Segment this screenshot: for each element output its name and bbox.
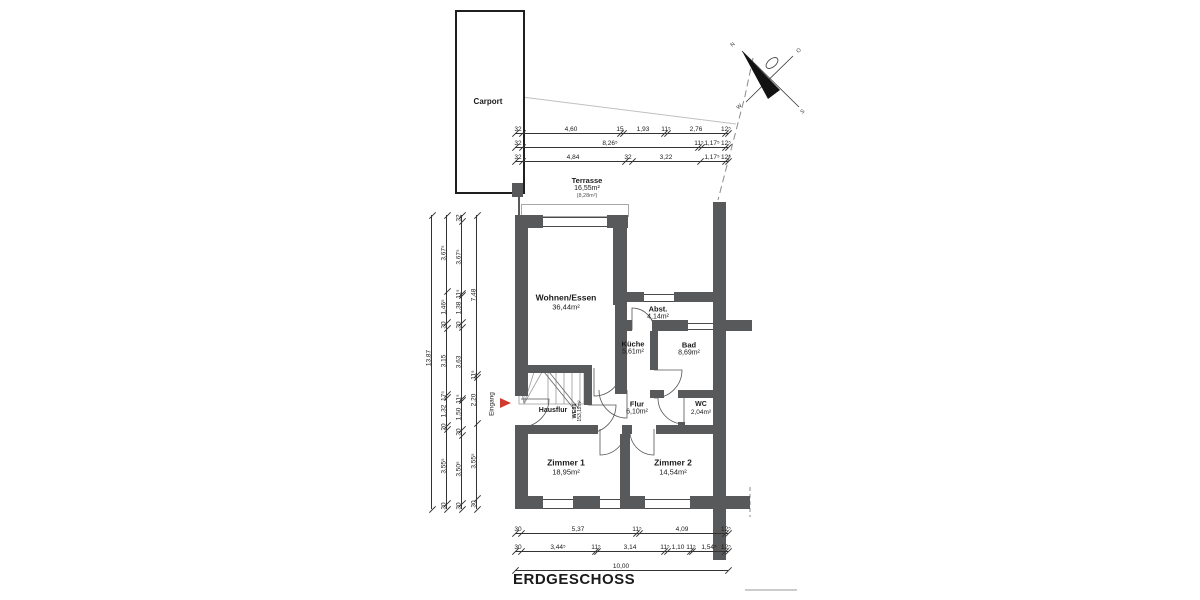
wall (627, 292, 644, 302)
dimension-label: 11⁵ (471, 370, 478, 379)
dimension-label: 4,60 (565, 126, 578, 133)
window (645, 499, 690, 509)
window (543, 217, 607, 227)
dimension-label: 3,67⁵ (441, 245, 448, 260)
dimension-label: 1,10 (672, 544, 685, 551)
dimension-label: 32 (624, 154, 631, 161)
dimension-label: 13,87 (426, 350, 433, 366)
dimension-label: 10,00 (613, 563, 629, 570)
dimension-label: 2,20 (471, 394, 478, 407)
dimension-label: 1,38 (456, 302, 463, 315)
dimension-label: 11⁵ (661, 126, 670, 133)
dimension-label: 32 (514, 126, 521, 133)
dimension-label: 32 (456, 214, 463, 221)
dimension-chain-line: 323,67⁵11⁵1,38303,6311⁵1,50303,50⁵30 (461, 215, 462, 509)
dimension-label: 1,46⁵ (441, 299, 448, 314)
dimension-chain-line: 324,84323,221,17⁵12⁵ (515, 161, 728, 162)
room-label-abstellraum: Abst. 4,14m² (647, 304, 669, 321)
room-label-wc: WC 2,04m² (691, 401, 711, 417)
dimension-label: 7,48 (471, 289, 478, 302)
dimension-label: 11⁵ (694, 140, 703, 147)
dimension-chain-line: 305,3711⁵4,0912⁵ (515, 533, 728, 534)
wall (627, 320, 632, 331)
wall (656, 425, 713, 434)
dimension-label: 15 (616, 126, 623, 133)
wall (573, 496, 600, 509)
wall (515, 215, 543, 228)
dimension-label: 32 (514, 154, 521, 161)
room-label-zimmer2: Zimmer 2 14,54m² (654, 457, 692, 476)
dimension-label: 11⁵ (660, 544, 669, 551)
window (644, 294, 674, 302)
dimension-label: 30 (456, 321, 463, 328)
dimension-label: 30 (471, 500, 478, 507)
dimension-label: 12⁵ (721, 126, 731, 133)
wall (613, 215, 627, 305)
dimension-label: 3,14 (624, 544, 637, 551)
window (543, 499, 573, 509)
dimension-chain-line: 303,44⁵11⁵3,1411⁵1,1011⁵1,54⁵12⁵ (515, 551, 728, 552)
wall (690, 496, 750, 509)
wall (515, 365, 592, 373)
dimension-label: 11⁵ (456, 394, 463, 403)
room-label-terrasse: Terrasse 16,55m² (8,28m²) (572, 176, 603, 200)
dimension-label: 30 (456, 428, 463, 435)
dimension-label: 20 (441, 423, 448, 430)
window (600, 499, 620, 509)
dimension-label: 3,50⁵ (456, 461, 463, 476)
room-label-flur: Flur 6,10m² (626, 399, 648, 416)
plan-linework (0, 0, 1200, 600)
dimension-label: 3,55⁵ (471, 453, 478, 468)
dimension-chain-line: 324,60151,9311⁵2,7612⁵ (515, 133, 728, 134)
dimension-label: 12⁵ (721, 544, 731, 551)
dimension-label: 12⁵ (721, 526, 731, 533)
dimension-label: 3,15 (441, 355, 448, 368)
dimension-label: 3,67⁵ (456, 249, 463, 264)
dimension-label: 1,93 (637, 126, 650, 133)
room-label-bad: Bad 8,69m² (678, 340, 700, 357)
wall (518, 196, 520, 215)
wall (515, 496, 543, 509)
room-label-hausflur: Hausflur (539, 407, 567, 415)
dimension-label: 1,50 (456, 408, 463, 421)
dimension-label: 30 (514, 526, 521, 533)
dimension-label: 4,84 (567, 154, 580, 161)
dimension-label: 11⁵ (686, 544, 695, 551)
wall (620, 434, 630, 496)
dimension-chain-line: 3,67⁵1,46⁵303,1517⁵1,32203,55⁵30 (446, 215, 447, 509)
dimension-label: 3,44⁵ (550, 544, 565, 551)
dimension-label: 1,17⁵ (704, 140, 719, 147)
dimension-chain-line: 7,4811⁵2,203,55⁵30 (476, 215, 477, 509)
dimension-label: 12⁵ (721, 154, 731, 161)
dimension-label: 3,22 (660, 154, 673, 161)
wall (584, 365, 592, 405)
wall (515, 425, 598, 434)
dimension-label: 2,76 (690, 126, 703, 133)
dimension-label: 1,54⁵ (701, 544, 716, 551)
window (688, 323, 713, 330)
dimension-label: 1,17⁵ (704, 154, 719, 161)
wall (678, 390, 713, 398)
north-arrow-icon (742, 51, 799, 107)
wall (650, 390, 664, 398)
dimension-chain-line: 13,87 (431, 215, 432, 509)
wall (622, 425, 632, 434)
room-label-wohnen-essen: Wohnen/Essen 36,44m² (536, 292, 597, 311)
room-label-kueche: Küche 5,61m² (622, 339, 645, 356)
dimension-label: 3,55⁵ (441, 458, 448, 473)
wall (650, 331, 658, 370)
dimension-label: 12⁵ (721, 140, 731, 147)
dimension-label: 3,63 (456, 356, 463, 369)
wall (615, 386, 627, 394)
dimension-label: 30 (441, 321, 448, 328)
page-title: ERDGESCHOSS (513, 571, 635, 588)
floor-plan-canvas: N O S W Carport Terrasse 16,55m² (8,28m²… (0, 0, 1200, 600)
dimension-label: 5,37 (572, 526, 585, 533)
dimension-label: 30 (441, 502, 448, 509)
room-label-zimmer1: Zimmer 1 18,95m² (547, 457, 585, 476)
dimension-label: 17⁵ (441, 391, 448, 401)
dimension-label: 11⁵ (591, 544, 600, 551)
entrance-arrow-icon (500, 398, 511, 408)
unit-label: WE01 153,12m² (572, 400, 584, 421)
dimension-label: 1,32 (441, 405, 448, 418)
dimension-label: 8,26⁵ (602, 140, 617, 147)
dimension-label: 30 (456, 502, 463, 509)
wall (726, 320, 752, 331)
carport-label: Carport (474, 97, 503, 107)
wall (512, 183, 523, 197)
dimension-label: 30 (514, 544, 521, 551)
wall (620, 496, 645, 509)
dimension-label: 11⁵ (632, 526, 641, 533)
dimension-label: 32 (514, 140, 521, 147)
entrance-label: Eingang (488, 392, 495, 416)
dimension-label: 11⁵ (456, 289, 463, 298)
dimension-label: 4,09 (676, 526, 689, 533)
wall (674, 292, 713, 302)
dimension-chain-line: 328,26⁵11⁵1,17⁵12⁵ (515, 147, 728, 148)
